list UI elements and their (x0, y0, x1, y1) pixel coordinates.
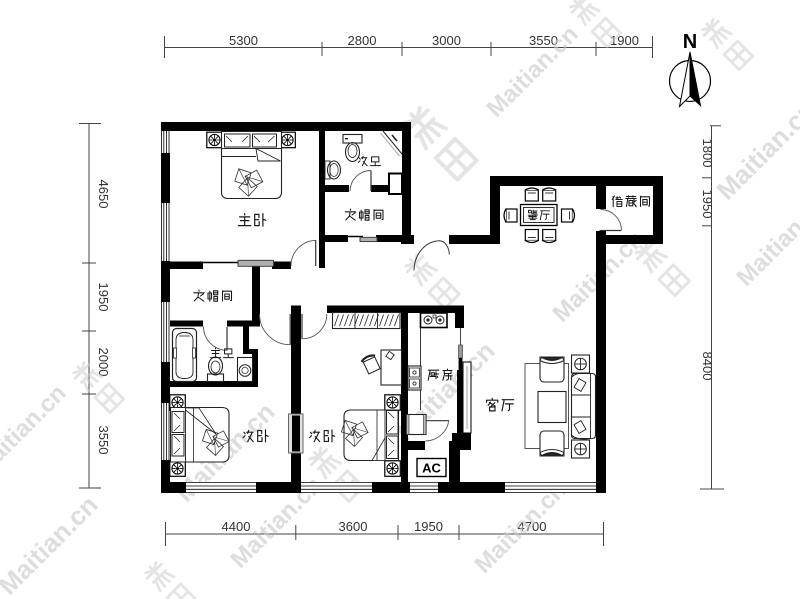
svg-text:3600: 3600 (339, 519, 368, 534)
svg-text:8400: 8400 (700, 352, 715, 381)
svg-text:2000: 2000 (96, 348, 111, 377)
svg-text:2800: 2800 (348, 33, 377, 48)
svg-text:5300: 5300 (229, 33, 258, 48)
svg-text:AC: AC (422, 461, 441, 476)
svg-text:1950: 1950 (96, 283, 111, 312)
svg-text:3000: 3000 (432, 33, 461, 48)
svg-text:4400: 4400 (222, 519, 251, 534)
svg-text:N: N (683, 31, 697, 53)
svg-text:1950: 1950 (414, 519, 443, 534)
svg-text:4650: 4650 (96, 180, 111, 209)
svg-text:1950: 1950 (700, 190, 715, 219)
svg-text:1800: 1800 (700, 139, 715, 168)
svg-text:3550: 3550 (96, 426, 111, 455)
